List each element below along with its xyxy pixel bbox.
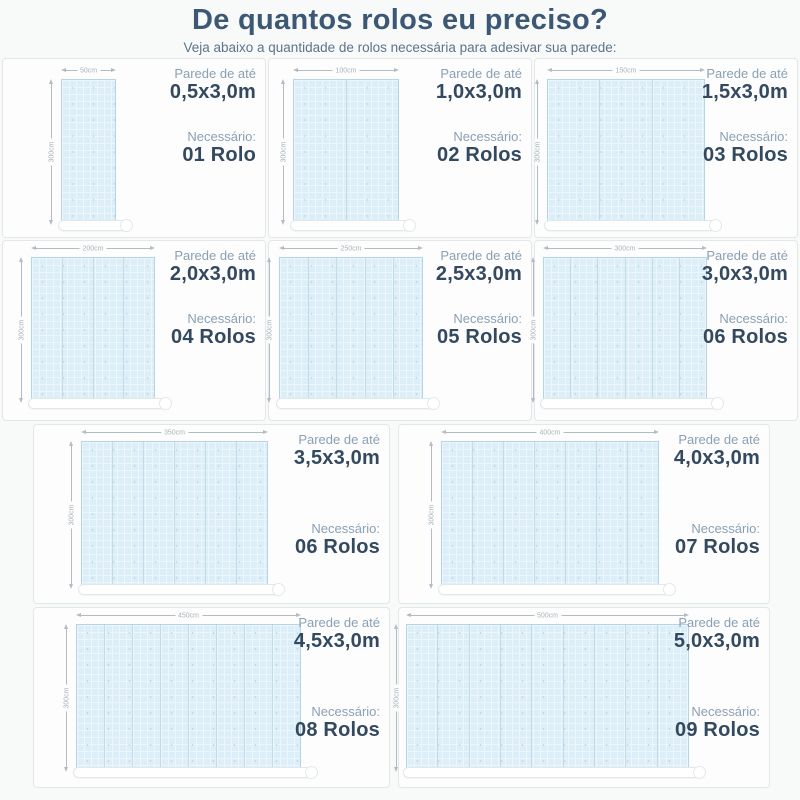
rolls-needed-value: 05 Rolos [437, 326, 522, 349]
wall-panel: 50cm300cmParede de até0,5x3,0mNecessário… [2, 58, 266, 238]
rolls-needed-value: 02 Rolos [437, 144, 522, 167]
width-dimension-label: 500cm [534, 612, 561, 619]
height-dimension-label: 300cm [428, 501, 435, 528]
wall-size-prefix: Parede de até [170, 66, 256, 81]
rolls-needed-prefix: Necessário: [171, 311, 256, 326]
rolls-needed-value: 06 Rolos [295, 536, 380, 559]
wall-illustration [76, 624, 301, 772]
wall-size-value: 1,0x3,0m [436, 81, 522, 104]
wall-size-value: 2,0x3,0m [170, 263, 256, 286]
unrolled-roll-bar [544, 220, 718, 231]
unrolled-roll-bar [438, 584, 672, 595]
wall-size-prefix: Parede de até [674, 432, 760, 447]
unrolled-roll-bar [540, 398, 720, 409]
roll-strip [597, 442, 628, 588]
wall-size-value: 4,5x3,0m [294, 630, 380, 653]
wall-size-value: 4,0x3,0m [674, 447, 760, 470]
wall-size-prefix: Parede de até [294, 615, 380, 630]
rolls-needed-caption: Necessário:08 Rolos [295, 704, 380, 742]
roll-strip [217, 625, 245, 771]
wall-size-prefix: Parede de até [294, 432, 380, 447]
roll-strip [407, 625, 438, 771]
wall-panel: 350cm300cmParede de até3,5x3,0mNecessári… [33, 424, 390, 604]
wall-illustration [61, 79, 116, 225]
roll-strip [82, 442, 113, 588]
rolls-needed-prefix: Necessário: [295, 704, 380, 719]
height-dimension-arrow: 300cm [279, 79, 288, 225]
roll-end-cap [159, 397, 172, 410]
wall-illustration [406, 624, 689, 772]
rolls-needed-value: 04 Rolos [171, 326, 256, 349]
unrolled-roll-bar [276, 398, 436, 409]
rolls-needed-prefix: Necessário: [182, 129, 256, 144]
wall-size-caption: Parede de até3,0x3,0m [702, 248, 788, 286]
wall-size-caption: Parede de até5,0x3,0m [674, 615, 760, 653]
roll-end-cap [305, 766, 318, 779]
wall-size-caption: Parede de até0,5x3,0m [170, 66, 256, 104]
wall-size-caption: Parede de até2,0x3,0m [170, 248, 256, 286]
roll-strip [566, 442, 597, 588]
rolls-needed-caption: Necessário:05 Rolos [437, 311, 522, 349]
roll-strip [32, 258, 63, 402]
wall-size-prefix: Parede de até [436, 248, 522, 263]
rolls-needed-caption: Necessário:09 Rolos [675, 704, 760, 742]
unrolled-roll-bar [73, 767, 314, 778]
roll-strip [133, 625, 161, 771]
roll-strip [595, 625, 626, 771]
width-dimension-arrow: 350cm [81, 428, 268, 437]
roll-strip [113, 442, 144, 588]
rolls-needed-caption: Necessário:03 Rolos [703, 129, 788, 167]
roll-strip [626, 258, 653, 402]
roll-strip [105, 625, 133, 771]
roll-strip [653, 80, 704, 224]
roll-strip [62, 80, 115, 224]
roll-strip [63, 258, 94, 402]
height-dimension-label: 300cm [280, 138, 287, 165]
rolls-needed-value: 06 Rolos [703, 326, 788, 349]
roll-strip [571, 258, 598, 402]
rolls-needed-caption: Necessário:02 Rolos [437, 129, 522, 167]
roll-strip [532, 625, 563, 771]
wall-size-value: 1,5x3,0m [702, 81, 788, 104]
width-dimension-arrow: 300cm [543, 244, 707, 253]
roll-strip [94, 258, 125, 402]
height-dimension-arrow: 300cm [427, 441, 436, 589]
roll-strip [470, 625, 501, 771]
width-dimension-label: 250cm [337, 245, 364, 252]
roll-strip [189, 625, 217, 771]
wall-illustration [543, 257, 707, 403]
wall-size-value: 3,5x3,0m [294, 447, 380, 470]
width-dimension-arrow: 100cm [293, 66, 399, 75]
height-dimension-label: 300cm [534, 138, 541, 165]
height-dimension-arrow: 300cm [265, 257, 274, 403]
wall-panel: 300cm300cmParede de até3,0x3,0mNecessári… [534, 240, 798, 421]
width-dimension-label: 150cm [612, 67, 639, 74]
wall-size-prefix: Parede de até [436, 66, 522, 81]
rolls-needed-value: 07 Rolos [675, 536, 760, 559]
wall-size-value: 3,0x3,0m [702, 263, 788, 286]
rolls-needed-prefix: Necessário: [703, 311, 788, 326]
roll-strip [347, 80, 399, 224]
height-dimension-arrow: 300cm [533, 79, 542, 225]
rolls-needed-value: 08 Rolos [295, 719, 380, 742]
width-dimension-label: 300cm [611, 245, 638, 252]
roll-strip [548, 80, 600, 224]
height-dimension-label: 300cm [393, 684, 400, 711]
roll-strip [206, 442, 237, 588]
roll-strip [294, 80, 347, 224]
infographic-canvas: De quantos rolos eu preciso? Veja abaixo… [0, 0, 800, 800]
roll-strip [544, 258, 571, 402]
height-dimension-arrow: 300cm [67, 441, 76, 589]
height-dimension-arrow: 300cm [392, 624, 401, 772]
roll-strip [473, 442, 504, 588]
rolls-needed-prefix: Necessário: [437, 129, 522, 144]
wall-size-prefix: Parede de até [702, 248, 788, 263]
wall-panel: 500cm300cmParede de até5,0x3,0mNecessári… [398, 607, 770, 788]
rolls-needed-caption: Necessário:06 Rolos [295, 521, 380, 559]
rolls-needed-prefix: Necessário: [675, 704, 760, 719]
wall-size-caption: Parede de até2,5x3,0m [436, 248, 522, 286]
page-subtitle: Veja abaixo a quantidade de rolos necess… [0, 40, 800, 55]
roll-strip [77, 625, 105, 771]
roll-end-cap [272, 583, 285, 596]
roll-strip [535, 442, 566, 588]
wall-illustration [441, 441, 659, 589]
width-dimension-arrow: 200cm [31, 244, 155, 253]
height-dimension-label: 300cm [18, 316, 25, 343]
wall-size-caption: Parede de até1,0x3,0m [436, 66, 522, 104]
roll-strip [337, 258, 366, 402]
height-dimension-arrow: 300cm [47, 79, 56, 225]
roll-strip [366, 258, 395, 402]
width-dimension-arrow: 450cm [76, 611, 301, 620]
height-dimension-label: 300cm [68, 501, 75, 528]
rolls-needed-prefix: Necessário: [675, 521, 760, 536]
roll-strip [245, 625, 273, 771]
rolls-needed-prefix: Necessário: [437, 311, 522, 326]
width-dimension-label: 50cm [77, 67, 100, 74]
roll-strip [504, 442, 535, 588]
rolls-needed-caption: Necessário:04 Rolos [171, 311, 256, 349]
roll-strip [161, 625, 189, 771]
roll-end-cap [693, 766, 706, 779]
roll-strip [144, 442, 175, 588]
roll-strip [175, 442, 206, 588]
wall-size-caption: Parede de até4,0x3,0m [674, 432, 760, 470]
rolls-needed-value: 01 Rolo [182, 144, 256, 167]
wall-illustration [81, 441, 268, 589]
wall-illustration [31, 257, 155, 403]
width-dimension-arrow: 50cm [61, 66, 116, 75]
height-dimension-arrow: 300cm [62, 624, 71, 772]
height-dimension-arrow: 300cm [17, 257, 26, 403]
width-dimension-label: 350cm [161, 429, 188, 436]
wall-size-value: 5,0x3,0m [674, 630, 760, 653]
roll-end-cap [709, 219, 722, 232]
wall-size-prefix: Parede de até [674, 615, 760, 630]
width-dimension-label: 200cm [79, 245, 106, 252]
roll-strip [598, 258, 625, 402]
width-dimension-arrow: 400cm [441, 428, 659, 437]
wall-size-value: 0,5x3,0m [170, 81, 256, 104]
wall-size-caption: Parede de até3,5x3,0m [294, 432, 380, 470]
rolls-needed-caption: Necessário:06 Rolos [703, 311, 788, 349]
roll-strip [394, 258, 422, 402]
roll-end-cap [120, 219, 133, 232]
roll-strip [438, 625, 469, 771]
roll-strip [653, 258, 680, 402]
roll-end-cap [403, 219, 416, 232]
roll-strip [626, 625, 657, 771]
roll-strip [124, 258, 154, 402]
width-dimension-arrow: 500cm [406, 611, 689, 620]
roll-strip [280, 258, 309, 402]
rolls-needed-prefix: Necessário: [703, 129, 788, 144]
width-dimension-arrow: 250cm [279, 244, 423, 253]
wall-panel: 150cm300cmParede de até1,5x3,0mNecessári… [534, 58, 798, 238]
height-dimension-arrow: 300cm [529, 257, 538, 403]
wall-panel: 450cm300cmParede de até4,5x3,0mNecessári… [33, 607, 390, 788]
wall-panel: 400cm300cmParede de até4,0x3,0mNecessári… [398, 424, 770, 604]
width-dimension-label: 450cm [175, 612, 202, 619]
wall-size-prefix: Parede de até [170, 248, 256, 263]
width-dimension-arrow: 150cm [547, 66, 705, 75]
unrolled-roll-bar [78, 584, 281, 595]
wall-illustration [293, 79, 399, 225]
wall-size-value: 2,5x3,0m [436, 263, 522, 286]
height-dimension-label: 300cm [266, 316, 273, 343]
wall-size-caption: Parede de até4,5x3,0m [294, 615, 380, 653]
roll-strip [564, 625, 595, 771]
unrolled-roll-bar [28, 398, 168, 409]
rolls-needed-value: 09 Rolos [675, 719, 760, 742]
rolls-needed-value: 03 Rolos [703, 144, 788, 167]
rolls-needed-caption: Necessário:07 Rolos [675, 521, 760, 559]
wall-panel: 250cm300cmParede de até2,5x3,0mNecessári… [268, 240, 532, 421]
width-dimension-label: 400cm [536, 429, 563, 436]
roll-strip [501, 625, 532, 771]
roll-end-cap [427, 397, 440, 410]
rolls-needed-caption: Necessário:01 Rolo [182, 129, 256, 167]
roll-end-cap [663, 583, 676, 596]
wall-size-caption: Parede de até1,5x3,0m [702, 66, 788, 104]
roll-strip [442, 442, 473, 588]
roll-strip [600, 80, 652, 224]
unrolled-roll-bar [290, 220, 412, 231]
width-dimension-label: 100cm [332, 67, 359, 74]
unrolled-roll-bar [58, 220, 129, 231]
roll-strip [237, 442, 267, 588]
wall-panel: 200cm300cmParede de até2,0x3,0mNecessári… [2, 240, 266, 421]
height-dimension-label: 300cm [63, 684, 70, 711]
wall-illustration [547, 79, 705, 225]
unrolled-roll-bar [403, 767, 702, 778]
roll-strip [628, 442, 658, 588]
height-dimension-label: 300cm [530, 316, 537, 343]
height-dimension-label: 300cm [48, 138, 55, 165]
roll-strip [309, 258, 338, 402]
roll-end-cap [711, 397, 724, 410]
rolls-needed-prefix: Necessário: [295, 521, 380, 536]
wall-panel: 100cm300cmParede de até1,0x3,0mNecessári… [268, 58, 532, 238]
wall-illustration [279, 257, 423, 403]
header: De quantos rolos eu preciso? Veja abaixo… [0, 0, 800, 55]
page-title: De quantos rolos eu preciso? [0, 4, 800, 37]
wall-size-prefix: Parede de até [702, 66, 788, 81]
